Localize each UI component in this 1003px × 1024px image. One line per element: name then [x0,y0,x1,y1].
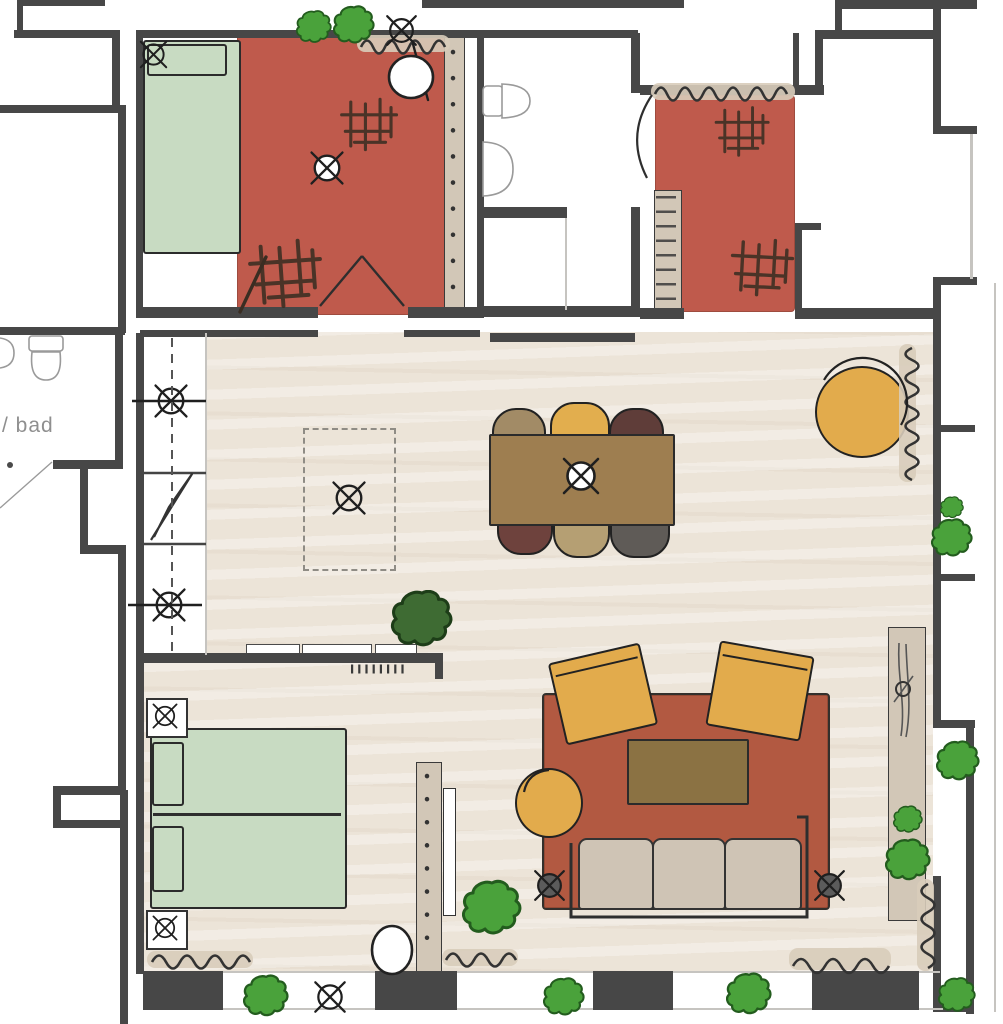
radiator-shadow [899,344,916,482]
plan-symbol-overlay [0,0,1003,1024]
plant-icon [939,978,975,1011]
toilet-bowl [502,84,530,118]
door-leaf [320,256,404,306]
floor-plan: / bad [0,0,1003,1024]
door-leaf [637,95,652,178]
plant-icon [463,881,519,933]
plant-icon [244,976,287,1016]
plant-icon [937,741,978,779]
plant-icon [894,806,922,832]
toilet-tank [29,336,63,351]
washbasin [483,142,513,196]
corner-basin [0,338,14,368]
stair-dot [7,462,13,468]
bathroom-fixtures [0,84,530,380]
sofa-frame [571,817,807,917]
plant-icon [886,840,929,880]
plant-icon [297,11,331,42]
toilet-tank [483,86,503,116]
stair-line [0,462,52,508]
circle-x-light-icon [334,483,365,514]
circle-x-light-icon [141,42,167,68]
circle-x-light-icon [153,916,176,939]
corridor-box-line [144,473,206,544]
round-stool [389,56,433,98]
pouf-arc [524,770,549,792]
floor-lamp-icon [815,871,844,900]
circle-x-light-icon [312,153,343,184]
rug-hatch-marks [731,238,794,296]
plant-icon [941,497,964,518]
rug-hatch-marks [716,108,768,156]
plant-icon [544,978,584,1014]
circle-x-light-icon [564,459,598,493]
plant-icon [932,519,972,555]
toilet-bowl [32,352,61,380]
radiator-shadow [442,949,518,966]
plant-icon [392,591,451,644]
plant-icon [334,6,374,42]
circle-x-light-icon [315,982,344,1011]
rug-hatch-marks [342,99,397,149]
round-stool [372,926,412,974]
circle-x-light-icon [153,704,176,727]
floor-lamp-icon [535,871,564,900]
pouf-arc [824,358,907,425]
plant-icon [727,974,770,1014]
